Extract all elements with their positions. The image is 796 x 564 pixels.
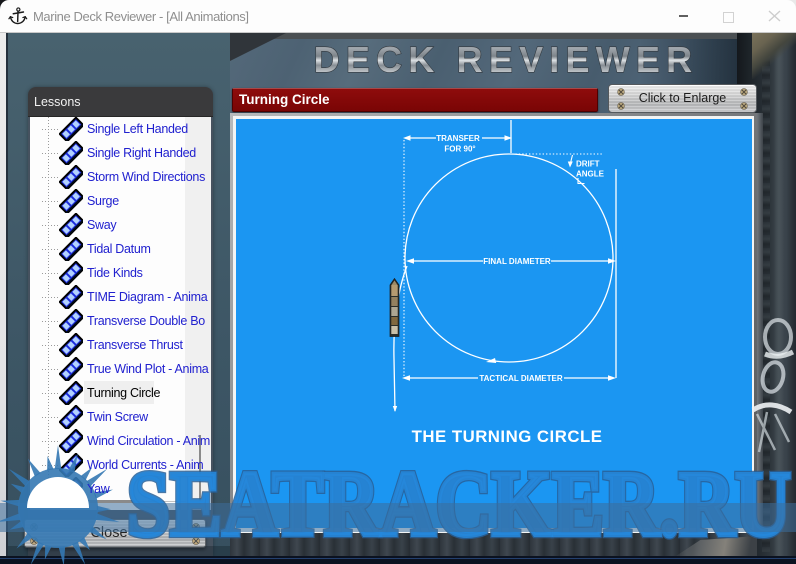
svg-text:FINAL DIAMETER: FINAL DIAMETER xyxy=(483,257,551,266)
svg-text:FOR 90°: FOR 90° xyxy=(444,145,475,154)
svg-text:DRIFT: DRIFT xyxy=(576,160,600,169)
svg-text:TRANSFER: TRANSFER xyxy=(436,134,480,143)
svg-text:ANGLE: ANGLE xyxy=(576,170,605,179)
svg-text:TACTICAL DIAMETER: TACTICAL DIAMETER xyxy=(479,374,562,383)
svg-text:DECK REVIEWER: DECK REVIEWER xyxy=(314,39,699,80)
